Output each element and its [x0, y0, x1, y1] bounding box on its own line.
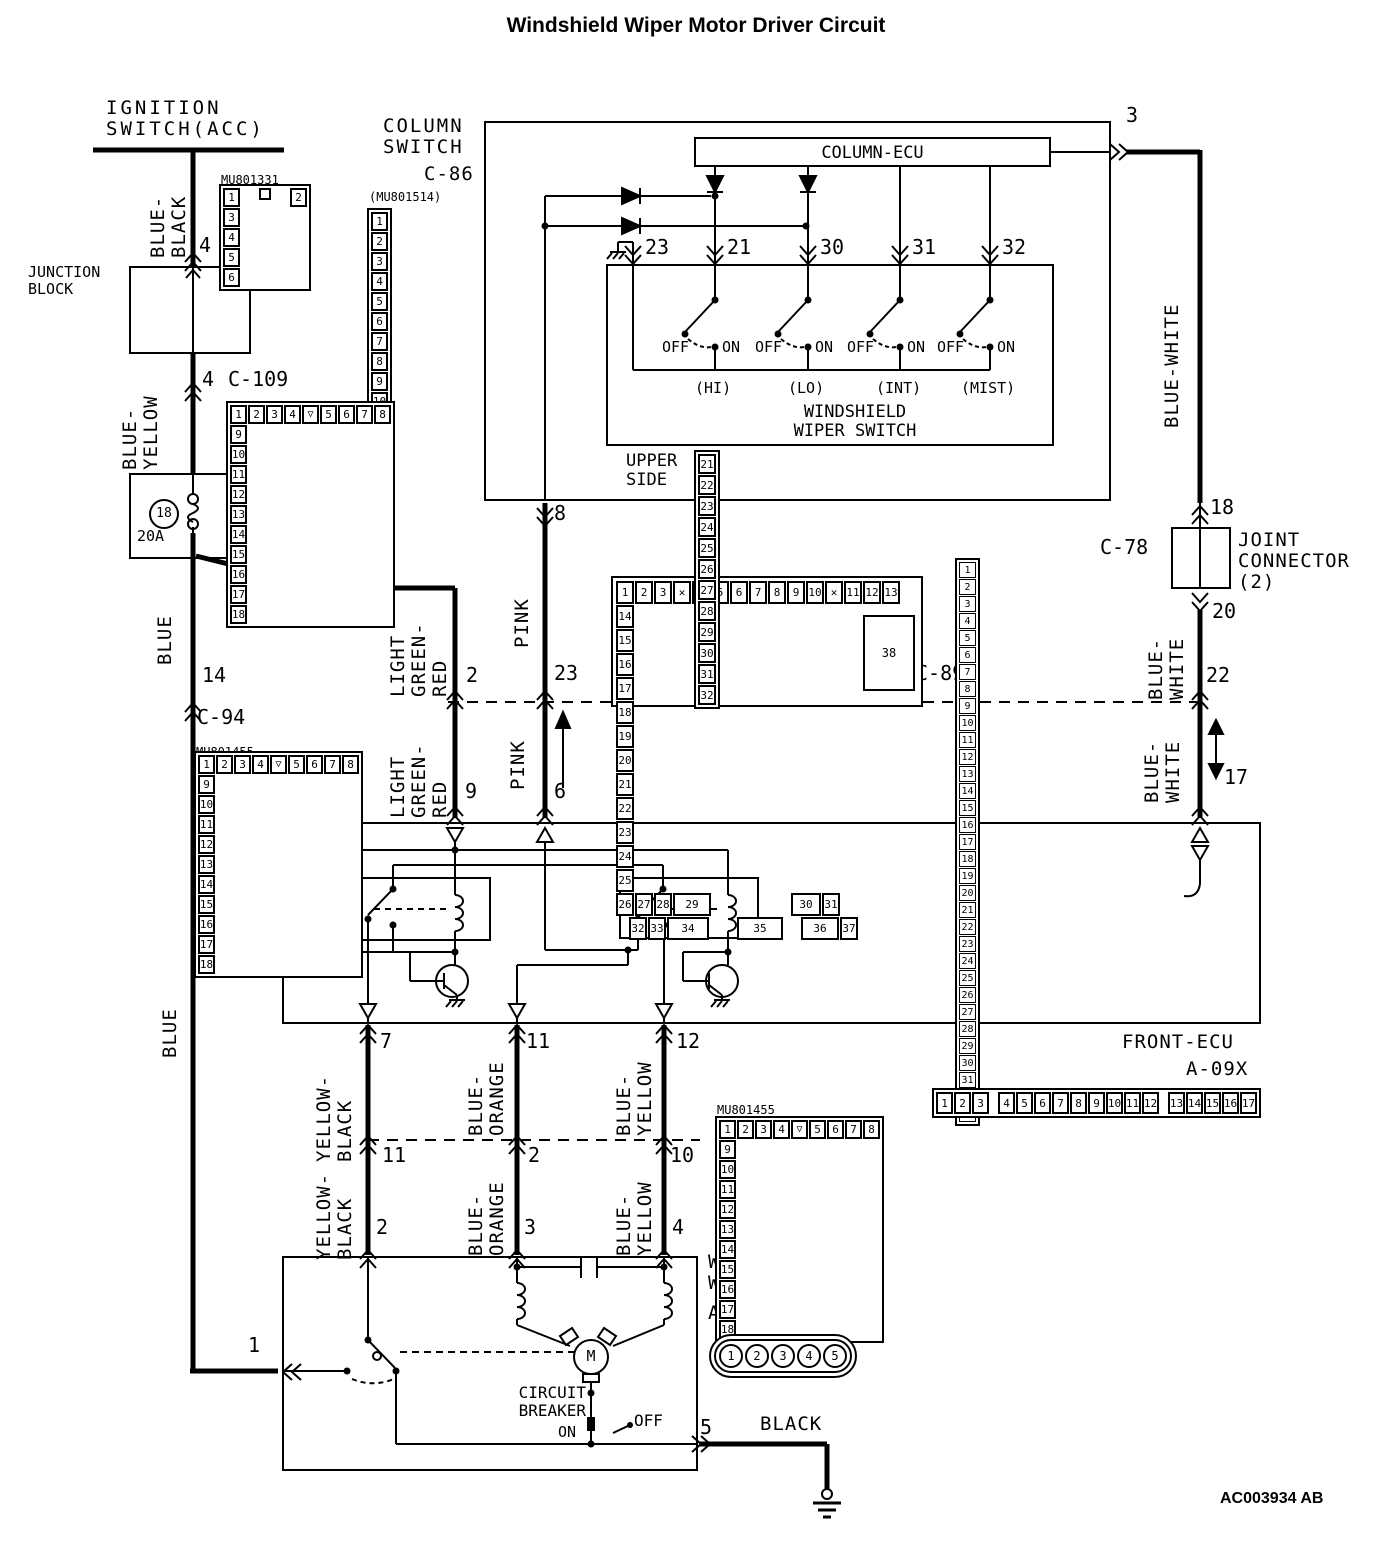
pin-19: 19: [959, 868, 976, 884]
breaker-on-label: ON: [558, 1424, 576, 1441]
wire-color-lgr-1: LIGHT GREEN- RED: [388, 622, 451, 697]
terminal-triangle-down: [447, 828, 463, 842]
front-ecu-label: FRONT-ECU: [1122, 1032, 1234, 1053]
pin-26: 26: [616, 893, 634, 916]
pin-6: 6: [223, 268, 240, 287]
pin-29: 29: [698, 622, 716, 642]
pin-36: 36: [801, 917, 839, 940]
pin-17: 17: [616, 677, 634, 700]
pin-2: 2: [635, 581, 653, 604]
pin-28: 28: [959, 1021, 976, 1037]
motor-base-rect: [583, 1374, 599, 1382]
wire-color-blue-yellow: BLUE- YELLOW: [120, 395, 162, 470]
pin-9: 9: [230, 425, 247, 444]
pin-4-c101: 4: [199, 234, 211, 256]
pin-34: 34: [667, 917, 709, 940]
pin-13: 13: [1168, 1092, 1185, 1114]
pin-5: 5: [1016, 1092, 1033, 1114]
pin-1: 1: [371, 212, 388, 231]
wire-color-blue-yellow-1: BLUE- YELLOW: [614, 1061, 656, 1136]
switch-hi: [685, 263, 715, 370]
connector-c101: 1 2 3456: [219, 184, 311, 291]
fuse-rating: 20A: [137, 528, 164, 545]
pin-7: 7: [371, 332, 388, 351]
wire-color-yellow-black-2: YELLOW- BLACK: [314, 1173, 356, 1260]
pin-label-30: 30: [820, 236, 844, 258]
park-travel-arc: [352, 1378, 396, 1383]
pin-9: 9: [465, 780, 477, 802]
pin-9: 9: [959, 698, 976, 714]
pin-26: 26: [698, 559, 716, 579]
pin-2: 2: [959, 579, 976, 595]
pin-17: 17: [1224, 766, 1248, 788]
wire-color-blue-white-3: BLUE- WHITE: [1142, 741, 1184, 803]
connector-c89: 123 ✕ 45678910 ✕ 111213 1415161718192021…: [611, 576, 923, 707]
wire-color-blue-white-1: BLUE-WHITE: [1162, 304, 1183, 428]
wire-color-pink-2: PINK: [508, 740, 529, 790]
pin-24: 24: [959, 953, 976, 969]
pin-4: 4: [284, 405, 301, 424]
terminal-triangle-down: [360, 1004, 376, 1018]
wire-color-blue-black: BLUE- BLACK: [148, 196, 190, 258]
pin-4: 4: [371, 272, 388, 291]
pin-7: 7: [845, 1120, 862, 1139]
switch-int: [870, 263, 900, 370]
connector-a09x: 123 456789101112 1314151617: [932, 1088, 1261, 1118]
pin-11: 11: [198, 815, 215, 834]
pin-14: 14: [202, 664, 226, 686]
pin-7: 7: [749, 581, 767, 604]
on-label-hi: ON: [722, 339, 740, 356]
pin-12: 12: [719, 1200, 736, 1219]
black-ground-wire: [700, 1444, 827, 1489]
terminal-triangle-down: [1192, 846, 1208, 860]
motor-coil-lo-icon: [517, 1283, 525, 1319]
pin-12: 12: [198, 835, 215, 854]
connector-c86: 12345 678910: [367, 208, 392, 415]
blocked-cavity-icon: ✕: [673, 581, 691, 604]
pin-2: 2: [466, 664, 478, 686]
on-label-mist: ON: [997, 339, 1015, 356]
pin-8: 8: [1070, 1092, 1087, 1114]
a03-pins: 12345: [714, 1339, 852, 1373]
pin-29: 29: [673, 893, 711, 916]
mode-mist: (MIST): [961, 380, 1015, 397]
wire-color-blue-orange-2: BLUE- ORANGE: [466, 1181, 508, 1256]
ground-terminal-circle: [822, 1489, 832, 1499]
off-label-lo: OFF: [755, 339, 782, 356]
pin-17: 17: [198, 935, 215, 954]
diode-icon: [707, 176, 723, 192]
wire-color-pink-1: PINK: [512, 598, 533, 648]
pin-1: 1: [198, 755, 215, 774]
pin-11: 11: [526, 1030, 550, 1052]
capacitor-line: [517, 1256, 664, 1278]
pin-11: 11: [844, 581, 862, 604]
pin-37: 37: [840, 917, 858, 940]
pin-9: 9: [198, 775, 215, 794]
diagram-code: AC003934 AB: [1220, 1490, 1323, 1508]
blocked-cavity-icon: ✕: [825, 581, 843, 604]
pin-6: 6: [371, 312, 388, 331]
mode-hi: (HI): [695, 380, 731, 397]
pin-22: 22: [616, 797, 634, 820]
pin-17: 17: [959, 834, 976, 850]
pin-16: 16: [719, 1280, 736, 1299]
pin-12: 12: [230, 485, 247, 504]
motor-m-label: M: [584, 1348, 598, 1365]
pin-33: 33: [648, 917, 666, 940]
pin-7: 7: [324, 755, 341, 774]
pin-5: 5: [823, 1344, 847, 1368]
pin-21: 21: [698, 454, 716, 474]
pin-11: 11: [719, 1180, 736, 1199]
pin-9: 9: [719, 1140, 736, 1159]
pin-7: 7: [356, 405, 373, 424]
pin-31: 31: [698, 664, 716, 684]
pin-3: 3: [1126, 104, 1138, 126]
pin-5: 5: [959, 630, 976, 646]
circuit-breaker-label: CIRCUIT BREAKER: [498, 1384, 586, 1419]
pin-27: 27: [959, 1004, 976, 1020]
pin-7: 7: [1052, 1092, 1069, 1114]
pin-1: 1: [616, 581, 634, 604]
fuse-number: 18: [152, 507, 176, 521]
pin-11b: 11: [382, 1144, 406, 1166]
pin-2c: 2: [376, 1216, 388, 1238]
pin-1: 1: [719, 1344, 743, 1368]
pin-18: 18: [198, 955, 215, 974]
pin-23: 23: [698, 496, 716, 516]
pin-label-23: 23: [645, 236, 669, 258]
pin-30: 30: [698, 643, 716, 663]
pin-5: 5: [371, 292, 388, 311]
diode-icon: [622, 188, 640, 204]
c86-code: C-86: [424, 164, 474, 185]
pin-31: 31: [959, 1072, 976, 1088]
pin-3b: 3: [524, 1216, 536, 1238]
connector-c78: 1234567891011 1213141516171819202122 232…: [955, 558, 980, 1126]
pin-5: 5: [809, 1120, 826, 1139]
pin-5: 5: [700, 1416, 712, 1438]
off-label-mist: OFF: [937, 339, 964, 356]
pin-10: 10: [1106, 1092, 1123, 1114]
connector-c94: 1234 ▽ 5678 9101112131415161718: [194, 751, 363, 978]
pin17-internal: [1184, 860, 1200, 896]
pin-14: 14: [616, 605, 634, 628]
pin-4b: 4: [672, 1216, 684, 1238]
pin-16: 16: [230, 565, 247, 584]
pin-7: 7: [380, 1030, 392, 1052]
pin-3: 3: [959, 596, 976, 612]
pin-18: 18: [1210, 496, 1234, 518]
crossing-20: [1192, 593, 1208, 611]
pin-15: 15: [616, 629, 634, 652]
pin-16: 16: [616, 653, 634, 676]
wire-color-black: BLACK: [760, 1414, 822, 1435]
pin-6: 6: [827, 1120, 844, 1139]
junction-block-label: JUNCTION BLOCK: [28, 264, 100, 297]
pin-24: 24: [616, 845, 634, 868]
column-ecu-label: COLUMN-ECU: [695, 144, 1050, 163]
pin-15: 15: [719, 1260, 736, 1279]
diode-icon: [622, 218, 640, 234]
pin-25: 25: [959, 970, 976, 986]
pin-15: 15: [1204, 1092, 1221, 1114]
pin-32: 32: [629, 917, 647, 940]
pin-3: 3: [371, 252, 388, 271]
pin-8: 8: [342, 755, 359, 774]
relay1-coil-icon: [455, 895, 463, 931]
breaker-lines: [591, 1381, 630, 1444]
pin-17: 17: [1240, 1092, 1257, 1114]
pin-24: 24: [698, 517, 716, 537]
pin-14: 14: [959, 783, 976, 799]
pin-4: 4: [223, 228, 240, 247]
wire-color-blue-orange-1: BLUE- ORANGE: [466, 1061, 508, 1136]
pin-2: 2: [248, 405, 265, 424]
terminal-triangle-up: [537, 828, 553, 842]
pin-6: 6: [730, 581, 748, 604]
pin-2: 2: [737, 1120, 754, 1139]
transistor2-icon: [706, 965, 738, 997]
connector-a03: 12345: [709, 1334, 857, 1378]
pin-3: 3: [972, 1092, 989, 1114]
pin-13: 13: [198, 855, 215, 874]
wire-color-blue-white-2: BLUE- WHITE: [1146, 638, 1188, 700]
pin-1: 1: [936, 1092, 953, 1114]
pin-20: 20: [616, 749, 634, 772]
pin-13: 13: [882, 581, 900, 604]
c78-code: C-78: [1100, 536, 1148, 558]
pin-12: 12: [676, 1030, 700, 1052]
column-switch-label: COLUMN SWITCH: [383, 116, 464, 158]
pin-2: 2: [745, 1344, 769, 1368]
pin-8: 8: [863, 1120, 880, 1139]
pin-6: 6: [338, 405, 355, 424]
pin-26: 26: [959, 987, 976, 1003]
wire-color-blue-1: BLUE: [155, 615, 176, 665]
wire-color-blue-2: BLUE: [160, 1008, 181, 1058]
pin-5: 5: [288, 755, 305, 774]
pin-6: 6: [554, 780, 566, 802]
pin-3: 3: [223, 208, 240, 227]
pin-10: 10: [670, 1144, 694, 1166]
pin-2: 2: [290, 188, 307, 207]
pin-8: 8: [374, 405, 391, 424]
pin-1: 1: [248, 1334, 260, 1356]
pin-15: 15: [198, 895, 215, 914]
crossing-3: [1110, 144, 1128, 160]
pin-16: 16: [959, 817, 976, 833]
pin-11: 11: [230, 465, 247, 484]
connector-c109: 1234 ▽ 5678 9101112131415161718: [226, 401, 395, 628]
transistor2-leads: [683, 952, 728, 1000]
pin-18: 18: [616, 701, 634, 724]
pin-2: 2: [954, 1092, 971, 1114]
upper-side-strip: 212223242526272829303132: [694, 450, 720, 709]
ground-icon: [711, 1000, 730, 1007]
pin-14: 14: [719, 1240, 736, 1259]
pin-18: 18: [959, 851, 976, 867]
pin-13: 13: [959, 766, 976, 782]
ground-icon: [607, 252, 626, 259]
pin-3: 3: [266, 405, 283, 424]
ecu-drop-wires: [715, 166, 990, 263]
pin-25: 25: [616, 869, 634, 892]
pin-10: 10: [806, 581, 824, 604]
pin-9: 9: [1088, 1092, 1105, 1114]
pin-38: 38: [863, 615, 915, 691]
switch-mist: [960, 263, 990, 370]
coil-hi-leads: [613, 1267, 664, 1346]
wiring-diagram-page: Windshield Wiper Motor Driver Circuit AC…: [0, 0, 1392, 1552]
pin-8: 8: [768, 581, 786, 604]
wire-color-yellow-black-1: YELLOW- BLACK: [314, 1075, 356, 1162]
pin-35: 35: [737, 917, 783, 940]
pin-2b: 2: [528, 1144, 540, 1166]
ignition-switch-label: IGNITION SWITCH(ACC): [106, 98, 265, 140]
off-label-int: OFF: [847, 339, 874, 356]
fuse-terminal-top: [188, 494, 198, 504]
pin-23: 23: [616, 821, 634, 844]
pin-3: 3: [234, 755, 251, 774]
pin-15: 15: [959, 800, 976, 816]
pin-10: 10: [230, 445, 247, 464]
pin-18: 18: [230, 605, 247, 624]
key-notch-icon: ▽: [302, 405, 319, 424]
pin-6: 6: [306, 755, 323, 774]
pin11-path: [517, 950, 628, 1023]
on-label-int: ON: [907, 339, 925, 356]
pin-4: 4: [959, 613, 976, 629]
pin-16: 16: [1222, 1092, 1239, 1114]
c94-code: C-94: [197, 706, 245, 728]
breaker-contact-icon: [588, 1418, 594, 1430]
pin-7: 7: [959, 664, 976, 680]
terminal-triangle-down: [656, 1004, 672, 1018]
pin-8: 8: [371, 352, 388, 371]
wire-color-lgr-2: LIGHT GREEN- RED: [388, 743, 451, 818]
on-label-lo: ON: [815, 339, 833, 356]
chassis-ground-icon: [813, 1503, 841, 1517]
pin-20: 20: [959, 885, 976, 901]
pin-12: 12: [863, 581, 881, 604]
pin-4: 4: [998, 1092, 1015, 1114]
a09x-code: A-09X: [1186, 1059, 1248, 1080]
pin-5: 5: [320, 405, 337, 424]
pin-8: 8: [554, 502, 566, 524]
pin-32: 32: [698, 685, 716, 705]
pin-1: 1: [719, 1120, 736, 1139]
pin-11: 11: [959, 732, 976, 748]
pin-22: 22: [959, 919, 976, 935]
pin-10: 10: [719, 1160, 736, 1179]
pin-9: 9: [787, 581, 805, 604]
diode-icon: [800, 176, 816, 192]
pin-30: 30: [791, 893, 821, 916]
pin-23: 23: [959, 936, 976, 952]
page-title: Windshield Wiper Motor Driver Circuit: [436, 14, 956, 38]
pin-label-32: 32: [1002, 236, 1026, 258]
pin-6: 6: [959, 647, 976, 663]
pin-3: 3: [771, 1344, 795, 1368]
pin-30: 30: [959, 1055, 976, 1071]
pin-10: 10: [959, 715, 976, 731]
mode-int: (INT): [876, 380, 921, 397]
pin-17: 17: [719, 1300, 736, 1319]
mode-lo: (LO): [788, 380, 824, 397]
pin-25: 25: [698, 538, 716, 558]
pin-14: 14: [230, 525, 247, 544]
c86-part-number: (MU801514): [369, 191, 441, 204]
pin-3: 3: [654, 581, 672, 604]
pin-12: 12: [959, 749, 976, 765]
pin-31: 31: [822, 893, 840, 916]
key-notch-icon: ▽: [791, 1120, 808, 1139]
flow-arrows: [556, 712, 1223, 788]
pin-label-21: 21: [727, 236, 751, 258]
pin-21: 21: [616, 773, 634, 796]
switch-lo: [778, 263, 808, 370]
pin-6: 6: [1034, 1092, 1051, 1114]
pin-1: 1: [959, 562, 976, 578]
pin-2: 2: [371, 232, 388, 251]
pin-27: 27: [698, 580, 716, 600]
joint-connector-label: JOINT CONNECTOR (2): [1238, 530, 1350, 593]
breaker-off-label: OFF: [634, 1412, 663, 1430]
pin-23: 23: [554, 662, 578, 684]
pin-4: 4: [797, 1344, 821, 1368]
park-cam-icon: [373, 1352, 381, 1360]
terminal-triangle-up: [1192, 828, 1208, 842]
pin-28: 28: [654, 893, 672, 916]
wire-color-blue-yellow-2: BLUE- YELLOW: [614, 1181, 656, 1256]
blue-white-wire: [1126, 150, 1200, 818]
pin-8: 8: [959, 681, 976, 697]
pin-15: 15: [230, 545, 247, 564]
upper-side-label: UPPER SIDE: [626, 452, 677, 489]
motor-coil-hi-icon: [664, 1283, 672, 1319]
transistor1-leads: [410, 952, 457, 1000]
pin-21: 21: [959, 902, 976, 918]
pin-4: 4: [773, 1120, 790, 1139]
pin-4-c109: 4: [202, 368, 214, 390]
terminal-triangle-down: [509, 1004, 525, 1018]
pin-label-31: 31: [912, 236, 936, 258]
pin-3: 3: [755, 1120, 772, 1139]
pin-4: 4: [252, 755, 269, 774]
pin-11: 11: [1124, 1092, 1141, 1114]
pin-22: 22: [698, 475, 716, 495]
pin-16: 16: [198, 915, 215, 934]
pin-28: 28: [698, 601, 716, 621]
off-label-hi: OFF: [662, 339, 689, 356]
pin-14: 14: [1186, 1092, 1203, 1114]
pin-17: 17: [230, 585, 247, 604]
pin-12: 12: [1142, 1092, 1159, 1114]
pin-14: 14: [198, 875, 215, 894]
pin-19: 19: [616, 725, 634, 748]
pin-13: 13: [230, 505, 247, 524]
pin-22: 22: [1206, 664, 1230, 686]
pin-1: 1: [223, 188, 240, 207]
connector-c06: 1234 ▽ 5678 9101112131415161718: [715, 1116, 884, 1343]
wiper-switch-label: WINDSHIELD WIPER SWITCH: [775, 403, 935, 440]
pin-5: 5: [223, 248, 240, 267]
wiper-motor-box: [283, 1257, 697, 1470]
key-notch-icon: ▽: [270, 755, 287, 774]
